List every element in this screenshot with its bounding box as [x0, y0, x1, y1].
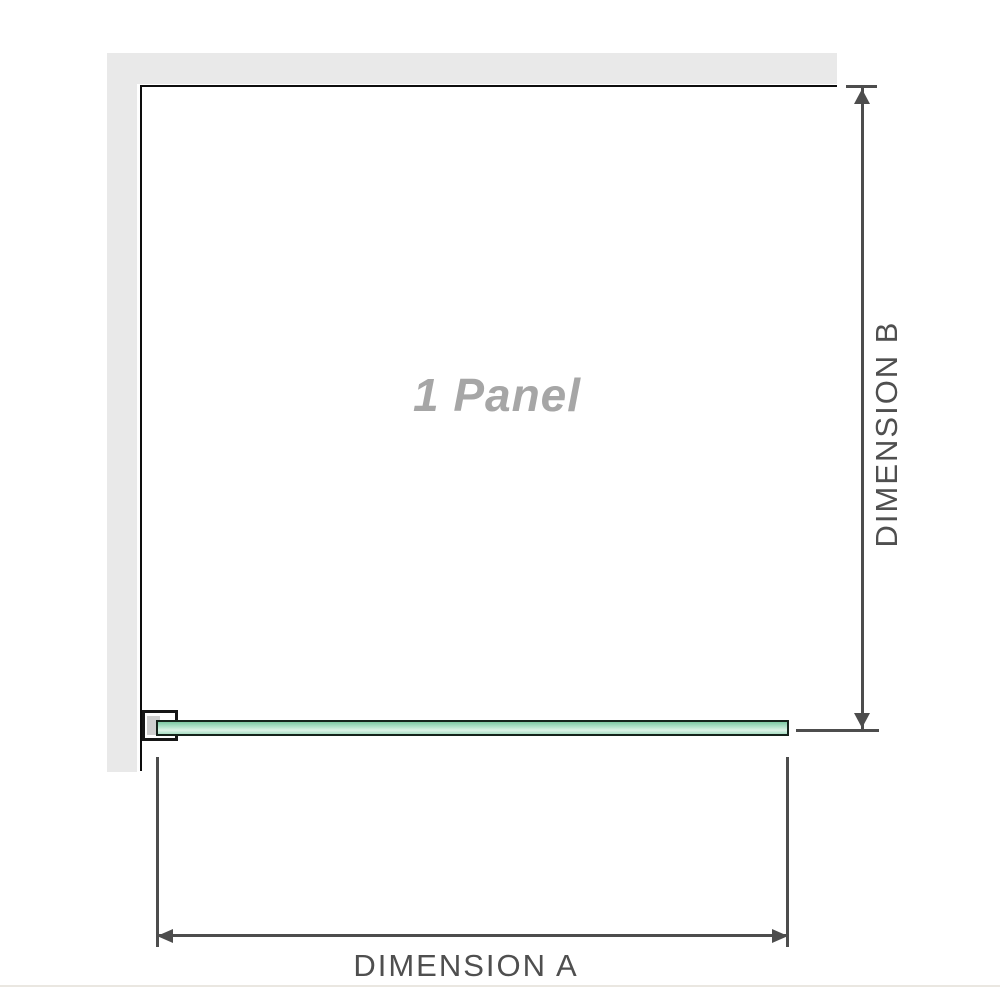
dimension-b-line — [861, 88, 864, 729]
dimension-a-line — [158, 934, 787, 937]
dimension-diagram: 1 Panel DIMENSION B DIMENSION A — [0, 0, 1000, 1000]
extension-line-left — [156, 757, 159, 947]
wall-left — [107, 53, 137, 772]
dimension-a-label: DIMENSION A — [290, 948, 642, 984]
dimension-b-label: DIMENSION B — [869, 321, 905, 548]
arrow-left-icon — [157, 929, 173, 943]
arrow-up-icon — [854, 89, 870, 104]
dimension-b-cap-bottom — [796, 729, 879, 732]
arrow-down-icon — [854, 713, 870, 728]
glass-panel-bar — [156, 720, 789, 736]
panel-outline — [140, 85, 837, 771]
extension-line-right — [786, 757, 789, 947]
arrow-right-icon — [772, 929, 788, 943]
wall-top — [107, 53, 837, 84]
panel-label: 1 Panel — [337, 368, 657, 422]
bottom-divider — [0, 985, 1000, 987]
